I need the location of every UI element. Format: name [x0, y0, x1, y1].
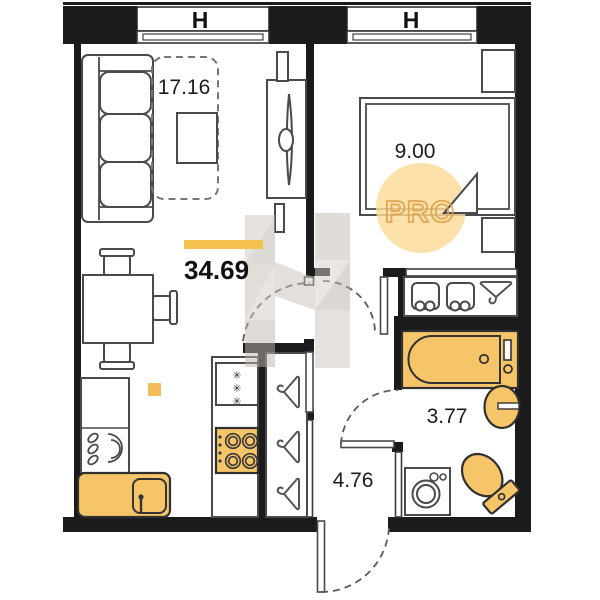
- coffee-table: [177, 113, 217, 163]
- washbasin: [485, 386, 520, 428]
- chair-right: [153, 291, 177, 324]
- wardrobe: [266, 353, 307, 517]
- total-area-accent-bar: [184, 240, 263, 249]
- bath-faucet: [504, 340, 511, 360]
- bathroom-area-label: 3.77: [427, 405, 468, 428]
- watermark-orange-square: [148, 383, 161, 396]
- window-label-left: H: [192, 7, 209, 33]
- counter-left: [81, 378, 129, 473]
- bathroom-door: [341, 390, 398, 448]
- snowflake-icon: ✳: [232, 370, 241, 382]
- snowflake-icon: ✳: [232, 383, 241, 395]
- bathtub: [402, 331, 518, 388]
- nightstand-top: [482, 50, 515, 92]
- chair-top: [100, 249, 134, 275]
- total-area-value: 34.69: [184, 255, 249, 285]
- watermark-pro-text: PRO: [385, 194, 455, 229]
- dining-table: [83, 249, 177, 369]
- floor-plan-drawing: ✳ ✳ ✳: [0, 0, 600, 600]
- fridge: ✳ ✳ ✳: [216, 363, 258, 408]
- washing-machine: [405, 468, 450, 515]
- kitchen-sink: [78, 473, 170, 517]
- shelf-bottom: [275, 204, 284, 232]
- entrance-door: [318, 521, 390, 592]
- snowflake-icon: ✳: [232, 396, 241, 408]
- shelf-top: [277, 52, 288, 81]
- hall-area-label: 4.76: [333, 469, 374, 492]
- chair-bottom: [100, 343, 134, 369]
- living-area-label: 17.16: [158, 76, 211, 99]
- floor-plan: ✳ ✳ ✳: [0, 0, 600, 600]
- nightstand-bottom: [482, 218, 515, 252]
- stove: [216, 428, 258, 473]
- shoe-shelf: [404, 277, 517, 316]
- toilet: [454, 445, 520, 514]
- window-label-right: H: [403, 7, 420, 33]
- sofa: [82, 55, 153, 222]
- bedroom-area-label: 9.00: [395, 140, 436, 163]
- tv-stand: [267, 52, 306, 232]
- kitchen: ✳ ✳ ✳: [78, 357, 258, 517]
